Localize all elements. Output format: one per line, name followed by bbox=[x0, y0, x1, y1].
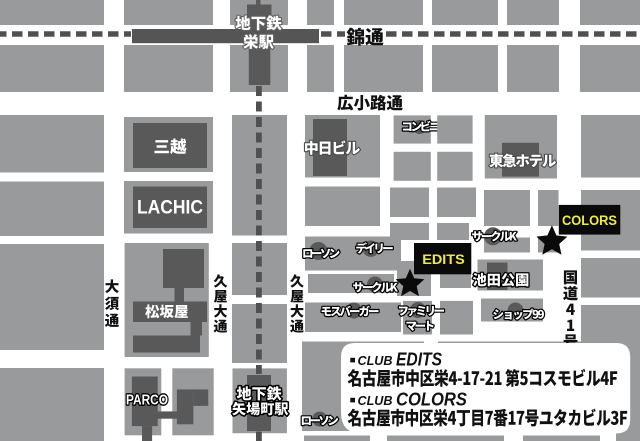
svg-text:COLORS: COLORS bbox=[562, 213, 617, 228]
svg-text:COLORS: COLORS bbox=[396, 389, 467, 409]
svg-text:LACHIC: LACHIC bbox=[137, 198, 203, 219]
svg-text:EDITS: EDITS bbox=[396, 349, 442, 369]
svg-text:EDITS: EDITS bbox=[422, 251, 465, 267]
svg-text:PARCO: PARCO bbox=[126, 392, 168, 409]
svg-text:CLUB: CLUB bbox=[358, 393, 393, 408]
svg-text:CLUB: CLUB bbox=[358, 353, 393, 368]
